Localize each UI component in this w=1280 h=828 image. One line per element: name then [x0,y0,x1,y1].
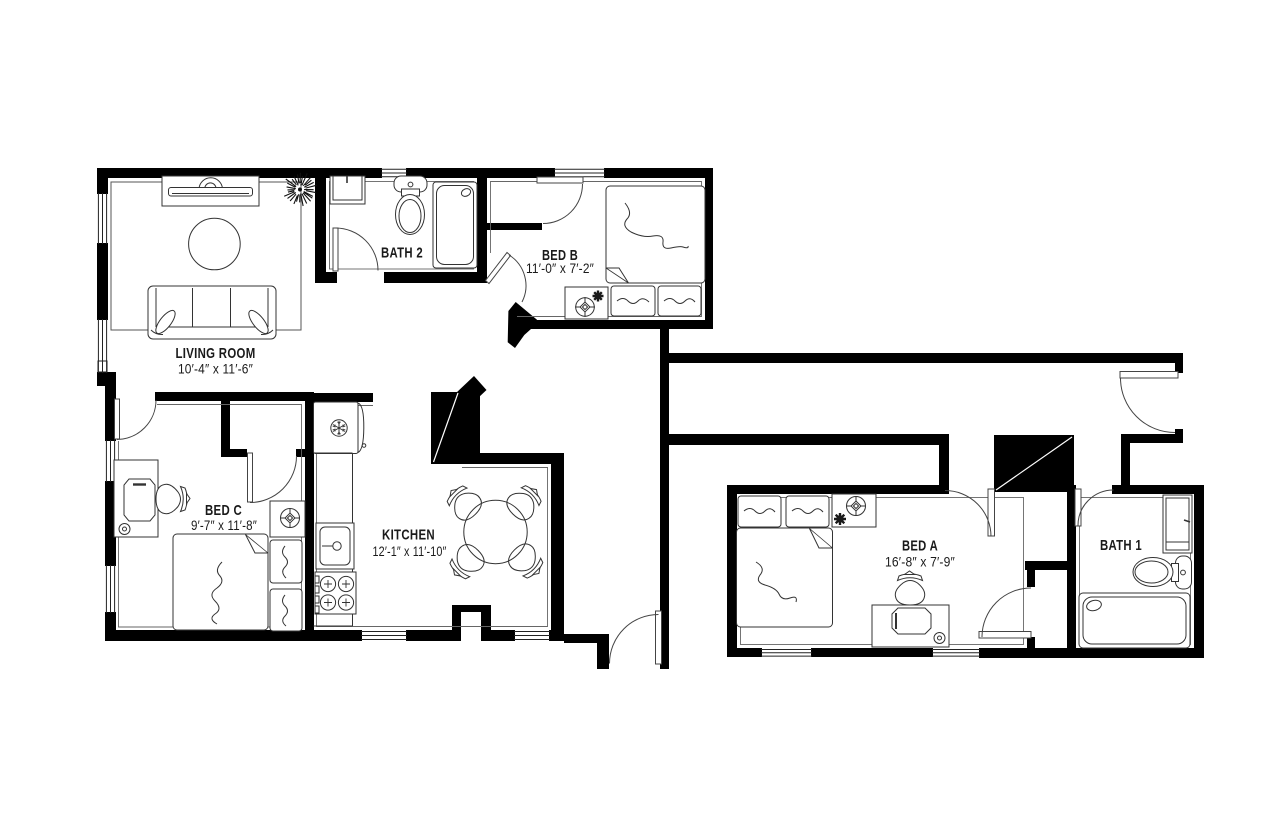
svg-text:KITCHEN: KITCHEN [382,527,435,544]
svg-text:BATH 1: BATH 1 [1100,537,1142,554]
svg-text:BATH 2: BATH 2 [381,245,423,262]
svg-text:11′-0″ x 7′-2″: 11′-0″ x 7′-2″ [526,260,594,276]
svg-text:LIVING ROOM: LIVING ROOM [176,345,256,362]
svg-text:16′-8″ x 7′-9″: 16′-8″ x 7′-9″ [885,554,955,570]
svg-text:BED A: BED A [902,538,938,555]
svg-text:9′-7″ x 11′-8″: 9′-7″ x 11′-8″ [191,517,257,533]
svg-text:12′-1″ x 11′-10″: 12′-1″ x 11′-10″ [373,543,447,559]
svg-text:10′-4″ x 11′-6″: 10′-4″ x 11′-6″ [178,361,253,377]
